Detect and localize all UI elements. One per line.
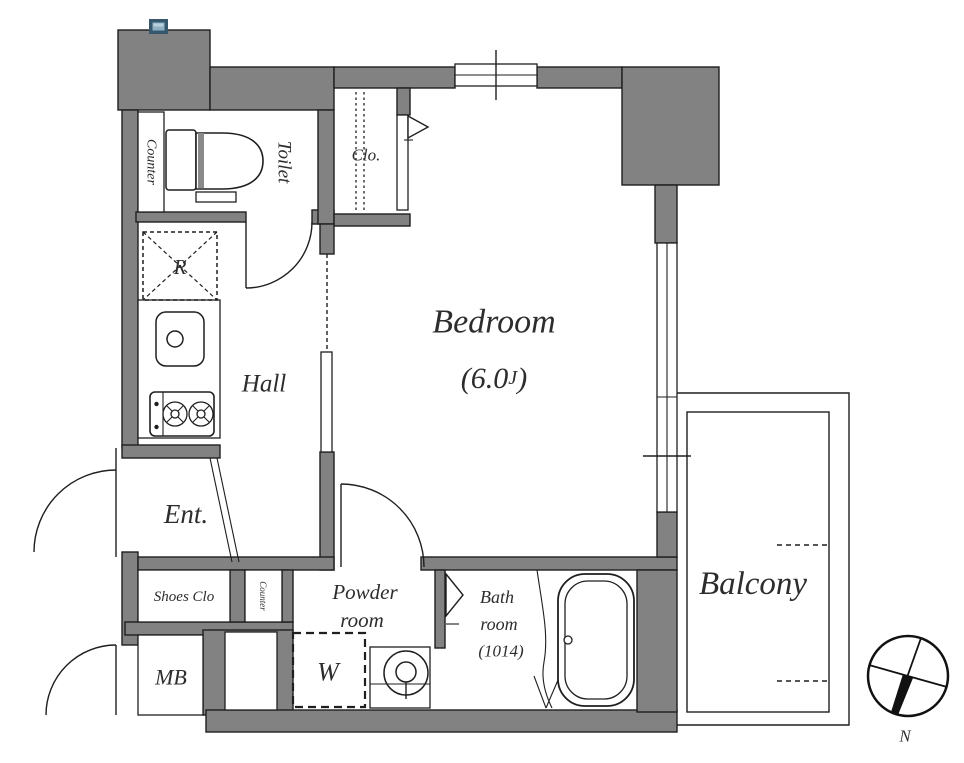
label-bathroom-line1: Bath — [480, 587, 514, 607]
entrance-door — [34, 448, 116, 557]
bathroom-door-arrow — [446, 574, 463, 624]
label-kitchen-counter: Counter — [258, 581, 268, 611]
label-washer-space: W — [317, 658, 341, 687]
label-bathroom-line2: room — [480, 614, 517, 634]
label-bedroom-area: (6.0J) — [461, 362, 527, 395]
kitchen-sink-icon — [156, 312, 204, 366]
label-closet: Clo. — [352, 146, 381, 165]
top-window — [455, 50, 537, 100]
label-refrigerator-space: R — [173, 255, 187, 279]
entrance-step-line — [210, 458, 239, 562]
bedroom-door — [341, 484, 424, 567]
toilet-door — [246, 222, 312, 288]
label-balcony: Balcony — [699, 566, 807, 602]
label-meter-box: MB — [154, 665, 187, 690]
meter-box-door — [46, 645, 116, 715]
label-bedroom: Bedroom — [432, 304, 555, 341]
closet-door-panel — [397, 115, 408, 210]
label-hall: Hall — [241, 371, 287, 398]
floor-plan-drawing: Counter Toilet Clo. R Bedroom (6.0J) Hal… — [0, 0, 964, 763]
stove-icon — [150, 392, 214, 436]
compass-icon — [868, 636, 948, 716]
sliding-door — [321, 254, 332, 452]
map-marker — [149, 19, 168, 34]
balcony-window — [643, 243, 691, 512]
label-powder-room-line1: Powder — [331, 580, 398, 604]
toilet-icon — [166, 130, 263, 202]
label-shoes-closet: Shoes Clo — [154, 589, 215, 605]
bathtub-icon — [558, 574, 634, 706]
label-toilet-counter: Counter — [144, 139, 159, 185]
label-toilet: Toilet — [274, 141, 295, 184]
label-powder-room-line2: room — [340, 608, 384, 632]
bedroom-area-open: (6.0 — [461, 362, 509, 395]
label-bathroom-line3: (1014) — [478, 642, 524, 661]
label-compass-north: N — [898, 727, 912, 746]
label-entrance: Ent. — [163, 499, 208, 529]
closet-door-arrow — [404, 116, 428, 140]
floor-plan-page: Counter Toilet Clo. R Bedroom (6.0J) Hal… — [0, 0, 964, 763]
bedroom-area-close: ) — [515, 362, 527, 395]
balcony-outline — [677, 393, 849, 725]
pipe-space-box — [225, 632, 277, 710]
shower-door — [534, 570, 558, 708]
